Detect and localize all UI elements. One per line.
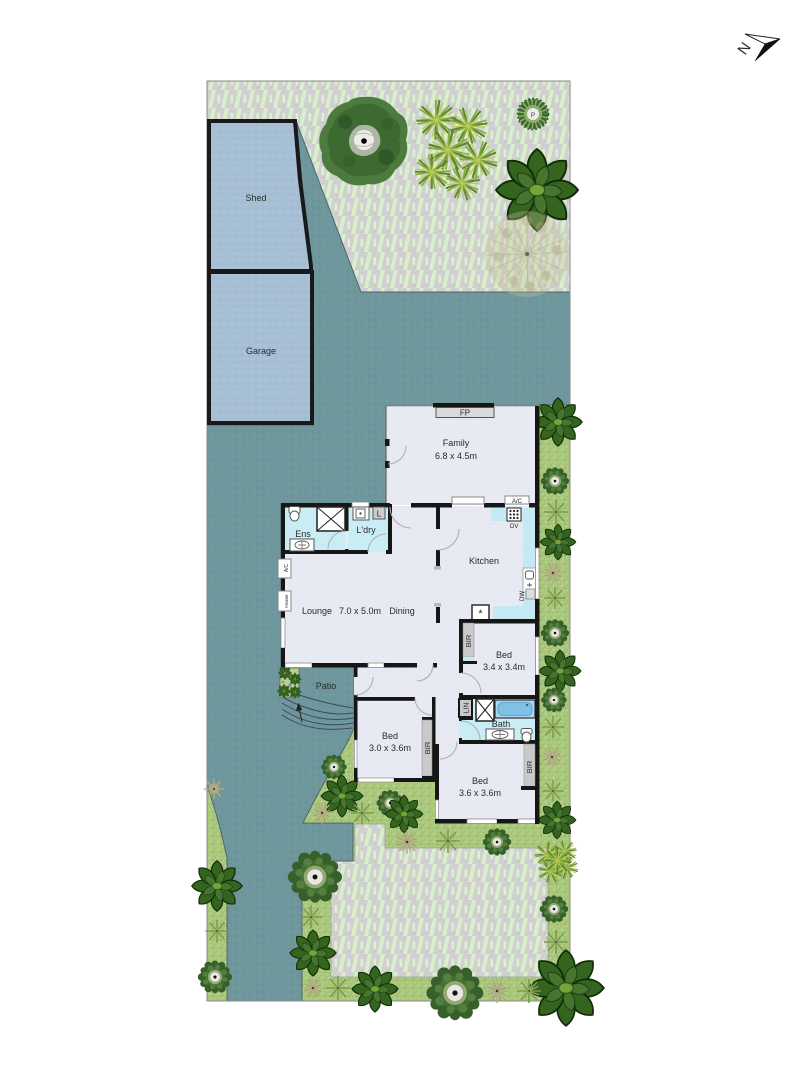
svg-text:Bed: Bed: [496, 650, 512, 660]
svg-text:FP: FP: [460, 409, 470, 418]
svg-text:Dining: Dining: [389, 606, 415, 616]
svg-text:L'dry: L'dry: [356, 525, 376, 535]
svg-text:Heater: Heater: [284, 594, 289, 608]
svg-text:Shed: Shed: [245, 193, 266, 203]
svg-text:L: L: [377, 510, 382, 519]
svg-text:Ens: Ens: [295, 529, 311, 539]
svg-text:3.0 x 3.6m: 3.0 x 3.6m: [369, 743, 411, 753]
svg-text:3.4 x 3.4m: 3.4 x 3.4m: [483, 662, 525, 672]
svg-text:BIR: BIR: [464, 634, 473, 647]
svg-text:P: P: [531, 113, 535, 119]
svg-text:*: *: [478, 608, 483, 620]
svg-text:OV: OV: [510, 524, 519, 530]
svg-text:BIR: BIR: [423, 741, 432, 754]
svg-text:Garage: Garage: [246, 346, 276, 356]
svg-text:LIN: LIN: [464, 703, 471, 714]
svg-text:3.6 x 3.6m: 3.6 x 3.6m: [459, 788, 501, 798]
svg-text:BIR: BIR: [525, 760, 534, 773]
svg-text:Patio: Patio: [316, 681, 337, 691]
svg-text:A/C: A/C: [512, 499, 523, 505]
svg-text:Kitchen: Kitchen: [469, 556, 499, 566]
svg-text:Bath: Bath: [492, 719, 511, 729]
svg-text:7.0 x 5.0m: 7.0 x 5.0m: [339, 606, 381, 616]
svg-text:A/C: A/C: [284, 563, 290, 572]
svg-text:Family: Family: [443, 438, 470, 448]
svg-text:6.8 x 4.5m: 6.8 x 4.5m: [435, 451, 477, 461]
svg-text:Bed: Bed: [472, 776, 488, 786]
svg-text:Bed: Bed: [382, 731, 398, 741]
svg-text:Lounge: Lounge: [302, 606, 332, 616]
svg-text:DW: DW: [520, 591, 526, 601]
